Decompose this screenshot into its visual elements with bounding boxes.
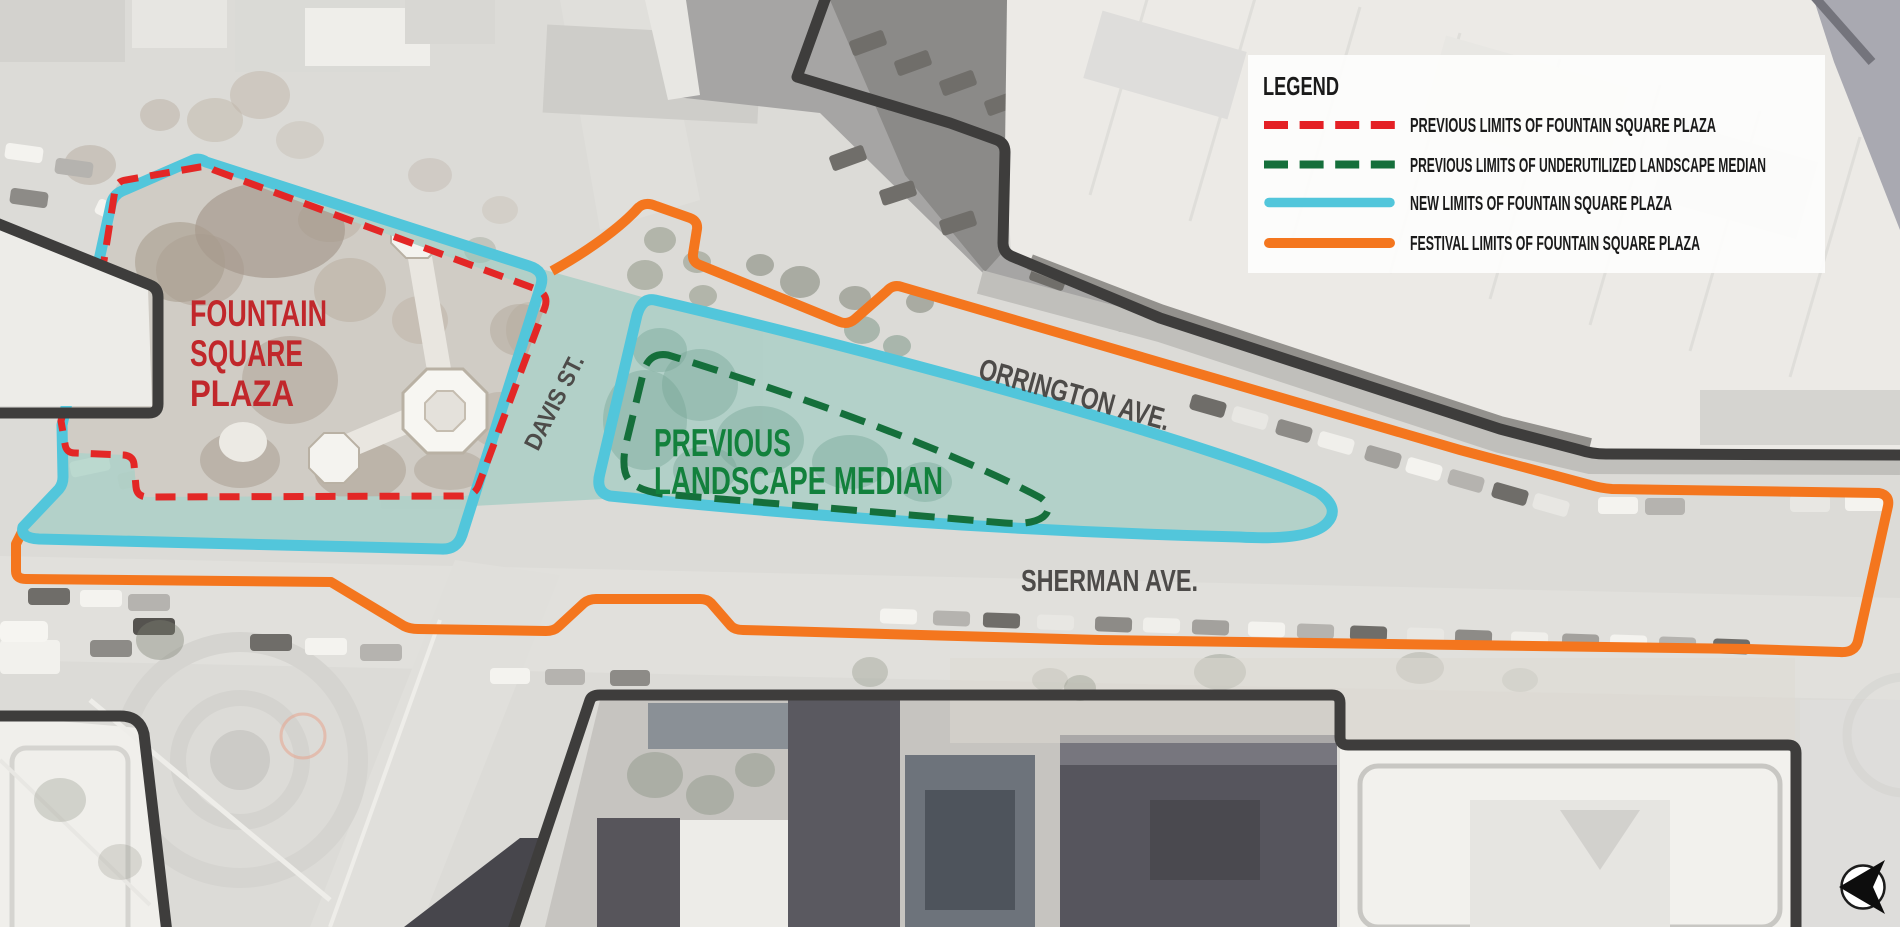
- svg-text:FOUNTAIN: FOUNTAIN: [190, 293, 327, 334]
- svg-text:LEGEND: LEGEND: [1263, 71, 1339, 101]
- svg-text:PREVIOUS LIMITS OF UNDERUTILIZ: PREVIOUS LIMITS OF UNDERUTILIZED LANDSCA…: [1410, 155, 1766, 177]
- svg-text:PLAZA: PLAZA: [190, 373, 294, 414]
- svg-text:SHERMAN AVE.: SHERMAN AVE.: [1021, 563, 1198, 598]
- svg-text:LANDSCAPE MEDIAN: LANDSCAPE MEDIAN: [654, 460, 943, 503]
- svg-text:PREVIOUS: PREVIOUS: [654, 422, 791, 465]
- svg-text:FESTIVAL LIMITS OF FOUNTAIN SQ: FESTIVAL LIMITS OF FOUNTAIN SQUARE PLAZA: [1410, 233, 1700, 255]
- svg-text:NEW LIMITS OF FOUNTAIN SQUARE: NEW LIMITS OF FOUNTAIN SQUARE PLAZA: [1410, 193, 1672, 215]
- svg-text:SQUARE: SQUARE: [190, 333, 303, 374]
- svg-text:PREVIOUS LIMITS OF FOUNTAIN SQ: PREVIOUS LIMITS OF FOUNTAIN SQUARE PLAZA: [1410, 115, 1716, 137]
